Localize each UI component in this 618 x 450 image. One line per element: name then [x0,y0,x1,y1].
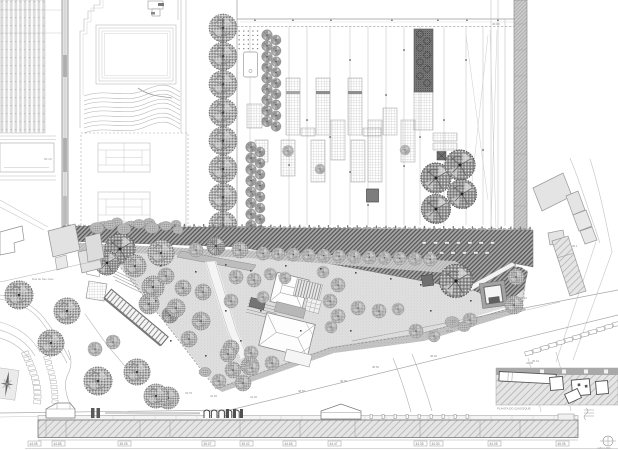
svg-text:44.05: 44.05 [490,442,498,446]
svg-text:43.70: 43.70 [185,391,192,395]
svg-text:44.30: 44.30 [432,442,440,446]
svg-text:ESC 1:500: ESC 1:500 [598,446,611,450]
svg-text:44.05: 44.05 [30,442,38,446]
svg-text:48.50: 48.50 [446,329,453,333]
svg-text:49.10: 49.10 [520,296,527,300]
svg-text:Rua de Sao Joao: Rua de Sao Joao [32,277,54,281]
svg-text:48.30: 48.30 [340,379,347,383]
svg-text:50.10: 50.10 [44,157,52,161]
svg-text:48.50: 48.50 [372,365,379,369]
svg-text:44.35: 44.35 [416,442,424,446]
svg-text:44.20: 44.20 [250,395,257,399]
svg-text:45.07: 45.07 [204,442,212,446]
svg-text:45.10: 45.10 [532,359,539,363]
svg-text:44.05: 44.05 [526,361,533,365]
svg-text:44.20: 44.20 [210,394,217,398]
svg-text:48.30: 48.30 [430,354,437,358]
svg-text:45.05: 45.05 [558,442,566,446]
svg-text:44.47: 44.47 [330,442,338,446]
svg-text:PLANTA DO QUIOSQUE: PLANTA DO QUIOSQUE [497,407,531,411]
svg-text:44.65: 44.65 [285,442,293,446]
svg-text:48.50: 48.50 [298,389,305,393]
svg-text:44.85: 44.85 [54,442,62,446]
svg-text:45.02: 45.02 [242,442,250,446]
svg-text:45.05: 45.05 [120,442,128,446]
svg-text:49.1: 49.1 [572,244,578,248]
svg-text:40.00: 40.00 [492,22,500,26]
